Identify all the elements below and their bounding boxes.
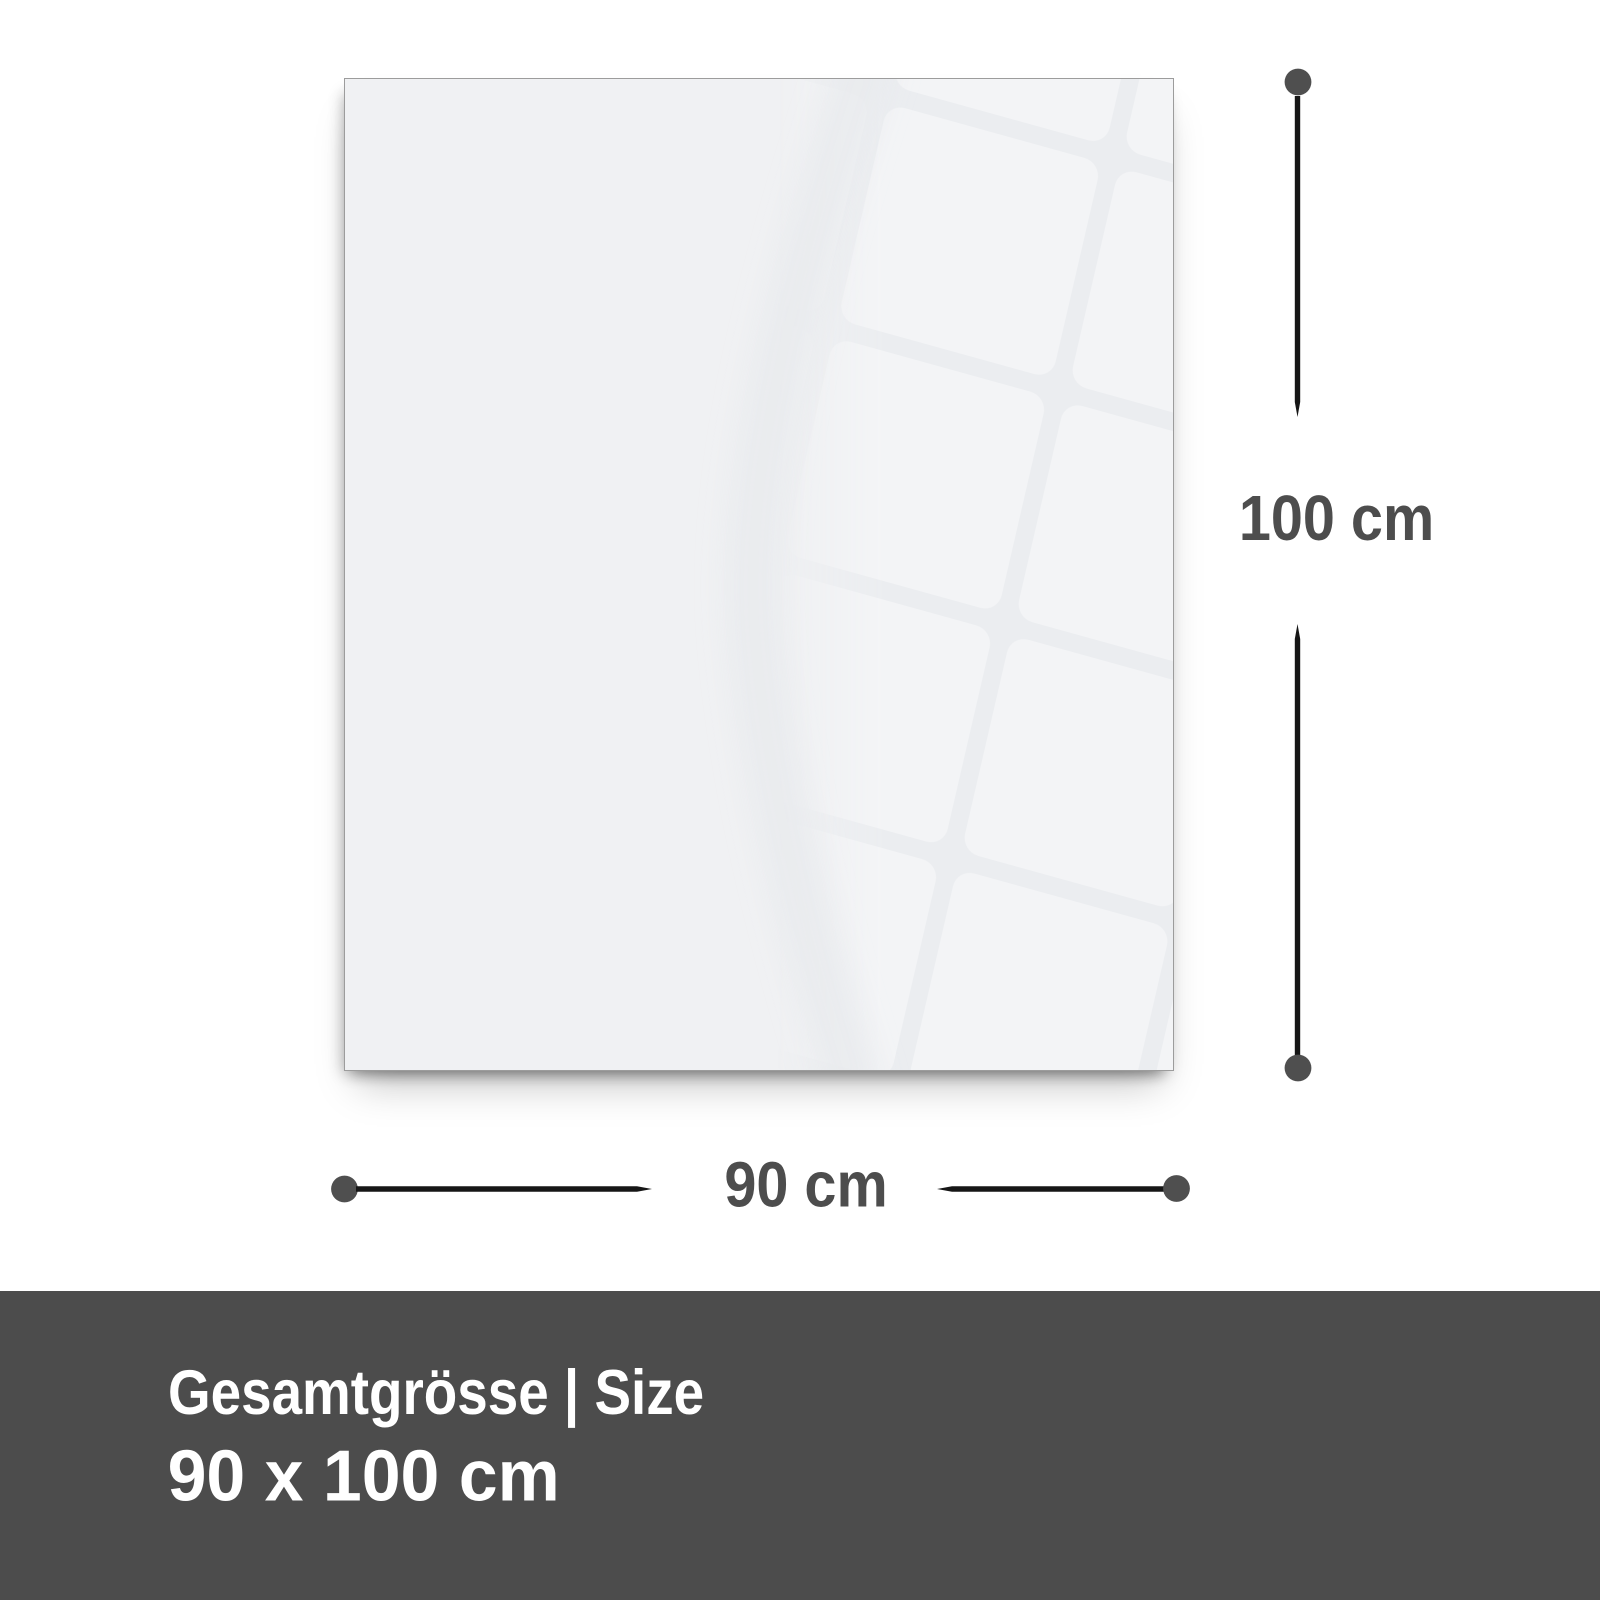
svg-text:100 cm: 100 cm — [1239, 482, 1434, 553]
svg-text:90 cm: 90 cm — [724, 1149, 887, 1220]
svg-text:90 x 100 cm: 90 x 100 cm — [168, 1437, 560, 1517]
svg-text:Gesamtgrösse | Size: Gesamtgrösse | Size — [168, 1357, 704, 1428]
